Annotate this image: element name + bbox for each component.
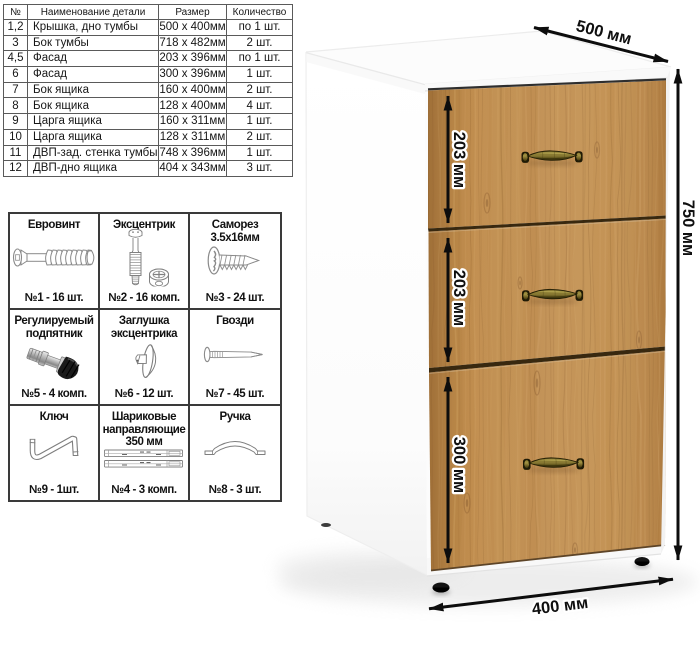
svg-text:300 мм: 300 мм [450, 437, 468, 494]
svg-text:203 мм: 203 мм [450, 270, 468, 327]
svg-text:750 мм: 750 мм [679, 200, 697, 257]
svg-text:203 мм: 203 мм [450, 132, 468, 189]
